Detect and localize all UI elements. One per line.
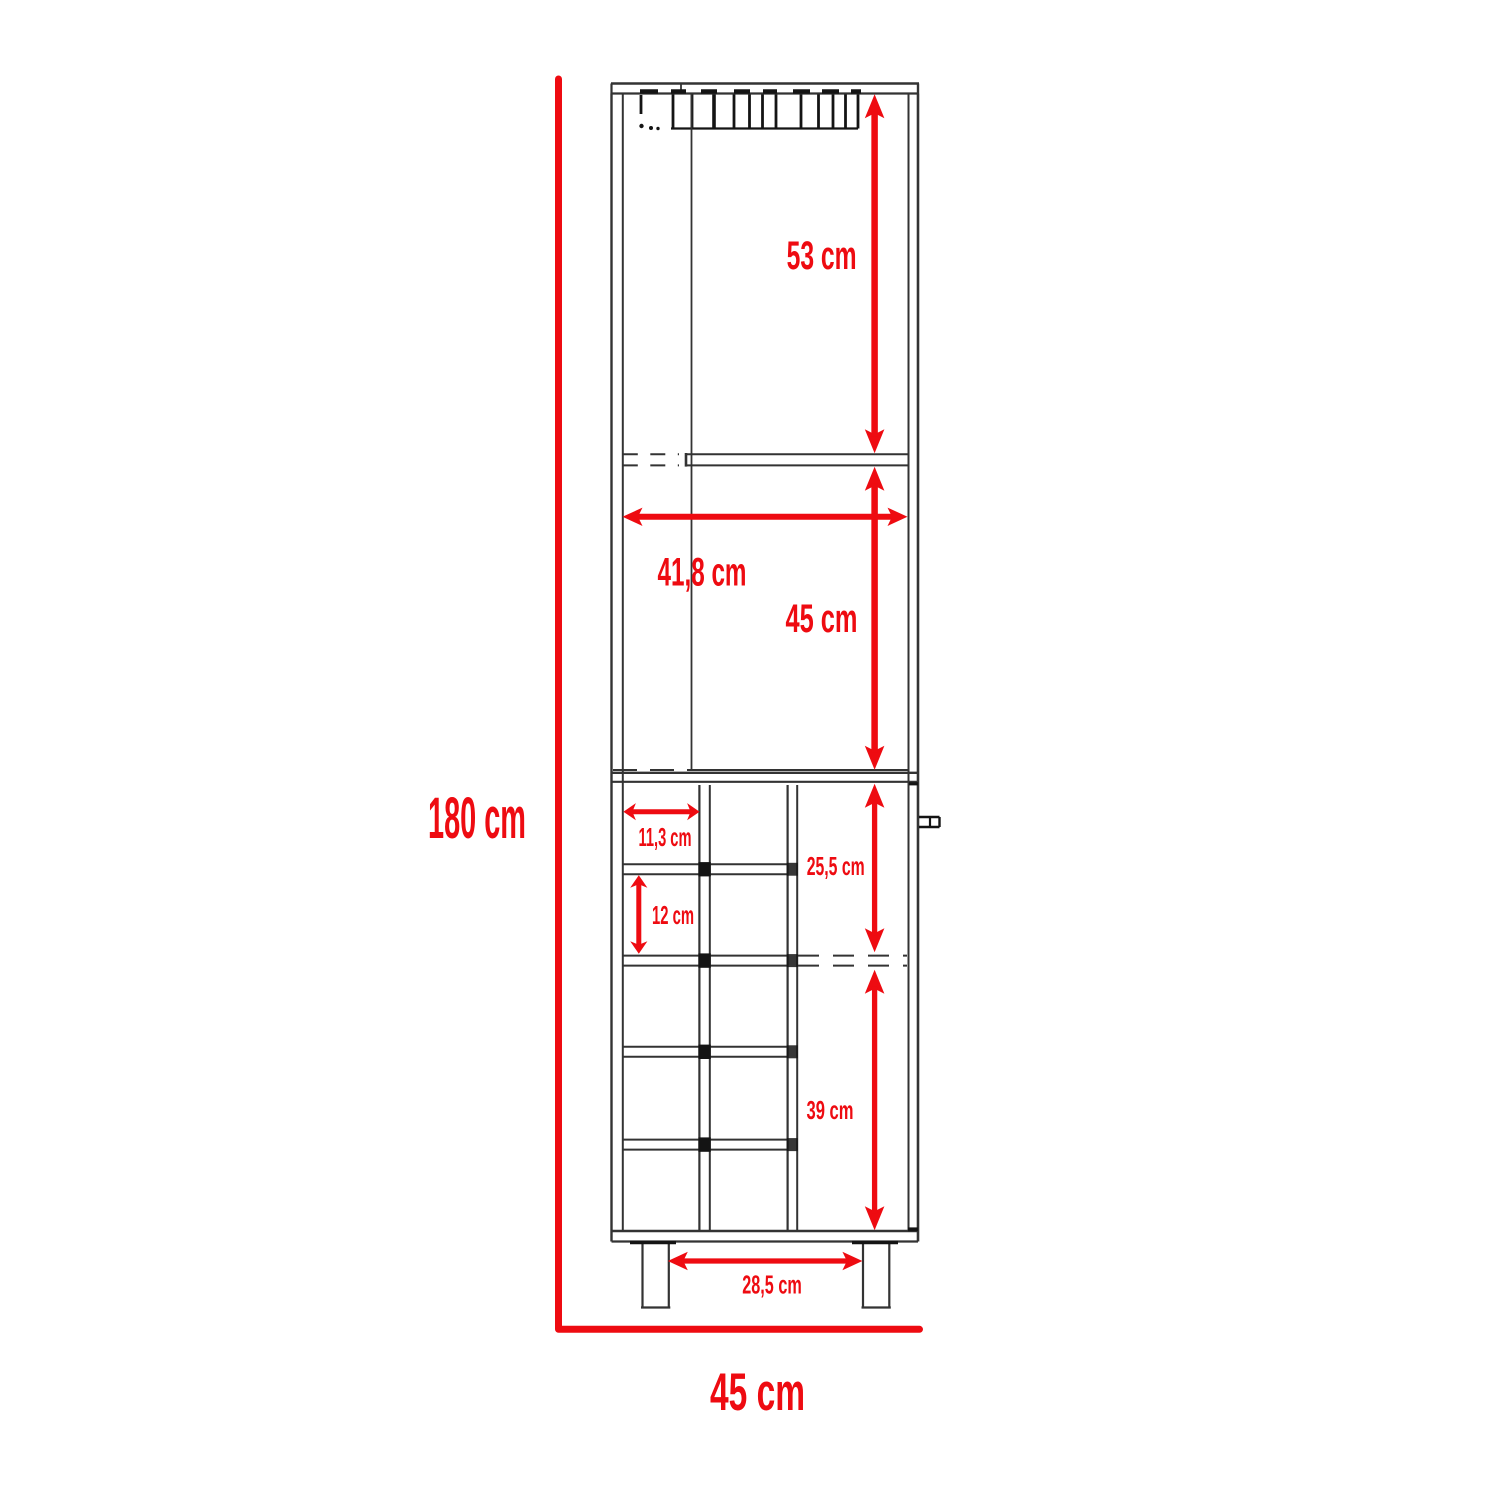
svg-text:25,5 cm: 25,5 cm xyxy=(807,851,865,881)
svg-text:41,8 cm: 41,8 cm xyxy=(658,551,747,595)
svg-text:39 cm: 39 cm xyxy=(807,1095,854,1125)
svg-text:53 cm: 53 cm xyxy=(787,234,857,278)
svg-text:45 cm: 45 cm xyxy=(786,597,858,641)
svg-text:180 cm: 180 cm xyxy=(428,786,526,851)
svg-text:11,3 cm: 11,3 cm xyxy=(639,822,692,852)
svg-text:45 cm: 45 cm xyxy=(710,1363,805,1422)
svg-text:12 cm: 12 cm xyxy=(652,900,694,930)
svg-text:28,5 cm: 28,5 cm xyxy=(742,1270,802,1300)
